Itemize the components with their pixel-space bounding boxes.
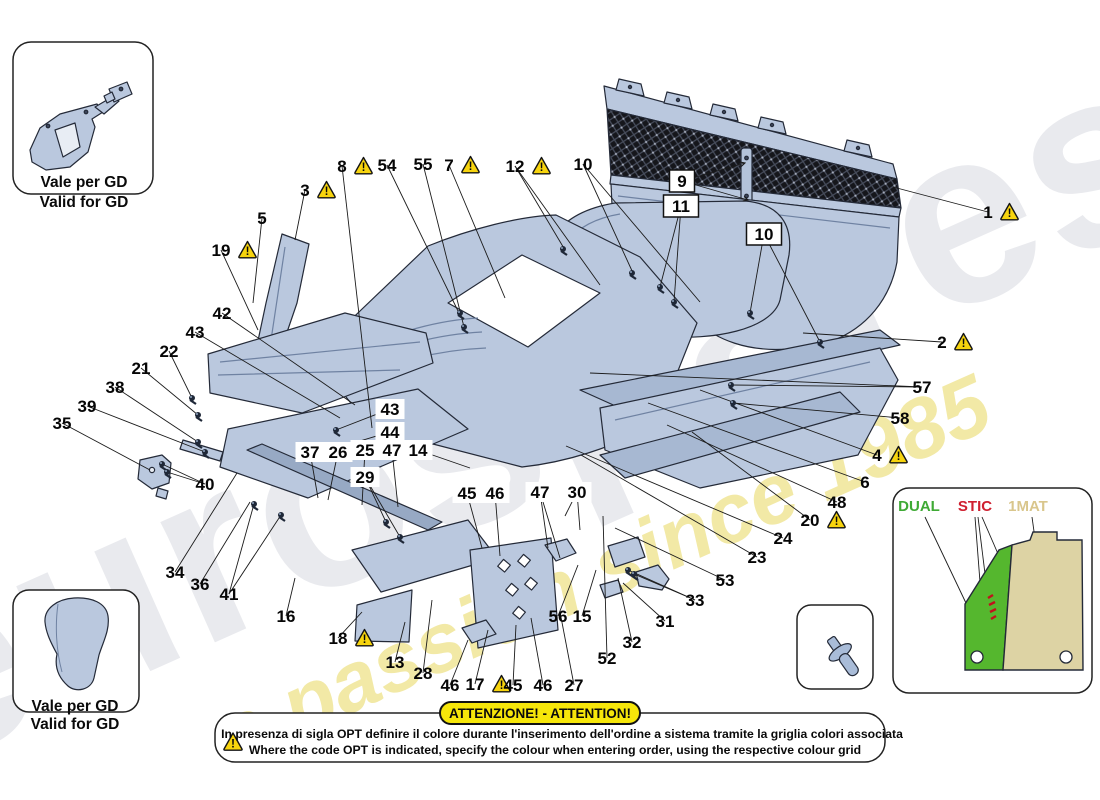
callout-31: 31 — [656, 612, 675, 631]
callout-number: 42 — [213, 304, 232, 323]
callout-6: 6 — [860, 473, 869, 492]
parts-diagram-page: eurospares a passion since 1985 — [0, 0, 1100, 800]
banner-title: ATTENZIONE! - ATTENTION! — [449, 706, 631, 721]
callout-47: 47 — [378, 440, 407, 460]
legend-option-stic: STIC — [958, 498, 992, 515]
callout-29: 29 — [351, 467, 380, 487]
svg-text:!: ! — [962, 338, 966, 350]
callout-45: 45 — [504, 676, 523, 695]
callout-number: 47 — [531, 483, 550, 502]
callout-number: 36 — [191, 575, 210, 594]
callout-10: 10 — [747, 223, 782, 245]
callout-5: 5 — [257, 209, 266, 228]
callout-9: 9 — [670, 170, 695, 192]
callout-41: 41 — [220, 585, 239, 604]
inset-top-left-caption-en: Valid for GD — [40, 194, 129, 211]
callout-23: 23 — [748, 548, 767, 567]
callout-34: 34 — [166, 563, 185, 582]
callout-3: 3! — [300, 181, 335, 200]
callout-54: 54 — [378, 156, 397, 175]
callout-25: 25 — [351, 440, 380, 460]
callout-number: 4 — [872, 446, 882, 465]
svg-text:!: ! — [469, 161, 473, 173]
callout-24: 24 — [774, 529, 793, 548]
inset-top-left: Vale per GD Valid for GD — [13, 42, 153, 211]
callout-number: 23 — [748, 548, 767, 567]
callout-number: 24 — [774, 529, 793, 548]
callout-number: 38 — [106, 378, 125, 397]
callout-number: 56 — [549, 607, 568, 626]
callout-number: 47 — [383, 441, 402, 460]
callout-46: 46 — [481, 483, 510, 503]
callout-number: 14 — [409, 441, 428, 460]
callout-45: 45 — [453, 483, 482, 503]
callout-number: 1 — [983, 203, 992, 222]
callout-43: 43 — [376, 399, 405, 419]
callout-number: 13 — [386, 653, 405, 672]
callout-number: 3 — [300, 181, 309, 200]
callout-number: 37 — [301, 443, 320, 462]
callout-15: 15 — [573, 607, 592, 626]
callout-37: 37 — [296, 442, 325, 462]
callout-number: 46 — [534, 676, 553, 695]
callout-number: 54 — [378, 156, 397, 175]
callout-58: 58 — [891, 409, 910, 428]
inset-bottom-left-caption-en: Valid for GD — [31, 716, 120, 733]
inset-bottom-left: Vale per GD Valid for GD — [13, 590, 139, 733]
callout-16: 16 — [277, 607, 296, 626]
callout-32: 32 — [623, 633, 642, 652]
warning-triangle-icon: ! — [318, 182, 335, 199]
callout-number: 10 — [574, 155, 593, 174]
callout-number: 17 — [466, 675, 485, 694]
svg-text:!: ! — [246, 246, 250, 258]
callout-12: 12! — [506, 157, 551, 176]
callout-11: 11 — [664, 195, 699, 217]
callout-26: 26 — [324, 442, 353, 462]
floor-mat-body — [1003, 532, 1083, 670]
svg-text:!: ! — [325, 186, 329, 198]
callout-38: 38 — [106, 378, 125, 397]
callout-number: 33 — [686, 591, 705, 610]
callout-number: 27 — [565, 676, 584, 695]
callout-number: 55 — [414, 155, 433, 174]
callout-52: 52 — [598, 649, 617, 668]
diagram-canvas: eurospares a passion since 1985 — [0, 0, 1100, 800]
callout-number: 58 — [891, 409, 910, 428]
callout-55: 55 — [414, 155, 433, 174]
callout-number: 28 — [414, 664, 433, 683]
callout-number: 20 — [801, 511, 820, 530]
callout-number: 15 — [573, 607, 592, 626]
svg-text:!: ! — [897, 451, 901, 463]
callout-46: 46 — [534, 676, 553, 695]
callout-48: 48 — [828, 493, 847, 512]
callout-number: 45 — [458, 484, 477, 503]
callout-number: 43 — [381, 400, 400, 419]
callout-46: 46 — [441, 676, 460, 695]
callout-13: 13 — [386, 653, 405, 672]
callout-42: 42 — [213, 304, 232, 323]
callout-number: 6 — [860, 473, 869, 492]
warning-triangle-icon: ! — [239, 242, 256, 259]
callout-number: 46 — [441, 676, 460, 695]
svg-text:!: ! — [835, 516, 839, 528]
callout-number: 9 — [677, 172, 686, 191]
callout-number: 48 — [828, 493, 847, 512]
warning-triangle-icon: ! — [355, 158, 372, 175]
callout-8: 8! — [337, 157, 372, 176]
callout-number: 10 — [755, 225, 774, 244]
callout-14: 14 — [404, 440, 433, 460]
callout-number: 46 — [486, 484, 505, 503]
callout-number: 25 — [356, 441, 375, 460]
svg-text:!: ! — [540, 162, 544, 174]
callout-number: 52 — [598, 649, 617, 668]
callout-47: 47 — [526, 482, 555, 502]
legend-option-dual: DUAL — [898, 498, 940, 515]
callout-21: 21 — [132, 359, 151, 378]
callout-number: 53 — [716, 571, 735, 590]
callout-56: 56 — [549, 607, 568, 626]
callout-number: 8 — [337, 157, 346, 176]
callout-39: 39 — [78, 397, 97, 416]
callout-number: 40 — [196, 475, 215, 494]
callout-40: 40 — [196, 475, 215, 494]
callout-27: 27 — [565, 676, 584, 695]
callout-10: 10 — [574, 155, 593, 174]
callout-number: 26 — [329, 443, 348, 462]
warning-triangle-icon: ! — [533, 158, 550, 175]
callout-number: 39 — [78, 397, 97, 416]
callout-number: 32 — [623, 633, 642, 652]
callout-number: 35 — [53, 414, 72, 433]
banner-line-it: In presenza di sigla OPT definire il col… — [221, 727, 903, 741]
callout-19: 19! — [212, 241, 257, 260]
callout-number: 21 — [132, 359, 151, 378]
callout-44: 44 — [376, 422, 405, 442]
callout-number: 16 — [277, 607, 296, 626]
callout-number: 34 — [166, 563, 185, 582]
callout-number: 7 — [444, 156, 453, 175]
legend-option-1mat: 1MAT — [1008, 498, 1048, 515]
banner-line-en: Where the code OPT is indicated, specify… — [249, 743, 861, 757]
callout-number: 57 — [913, 378, 932, 397]
callout-number: 19 — [212, 241, 231, 260]
warning-triangle-icon: ! — [462, 157, 479, 174]
callout-36: 36 — [191, 575, 210, 594]
svg-text:!: ! — [363, 634, 367, 646]
callout-57: 57 — [913, 378, 932, 397]
svg-text:!: ! — [1008, 208, 1012, 220]
callout-number: 44 — [381, 423, 400, 442]
callout-number: 30 — [568, 483, 587, 502]
svg-text:!: ! — [362, 162, 366, 174]
callout-30: 30 — [563, 482, 592, 502]
inset-bottom-left-caption-it: Vale per GD — [31, 698, 118, 715]
callout-35: 35 — [53, 414, 72, 433]
callout-number: 12 — [506, 157, 525, 176]
callout-7: 7! — [444, 156, 479, 175]
callout-number: 2 — [937, 333, 946, 352]
callout-33: 33 — [686, 591, 705, 610]
callout-number: 43 — [186, 323, 205, 342]
inset-fastener-59 — [797, 605, 873, 689]
callout-28: 28 — [414, 664, 433, 683]
leader-line — [253, 218, 262, 303]
callout-53: 53 — [716, 571, 735, 590]
callout-number: 11 — [672, 197, 690, 216]
inset-top-left-caption-it: Vale per GD — [40, 174, 127, 191]
callout-number: 29 — [356, 468, 375, 487]
mat-colour-legend: DUAL STIC 1MAT — [893, 488, 1092, 693]
callout-43: 43 — [186, 323, 205, 342]
fastener-icon — [189, 395, 196, 404]
callout-number: 5 — [257, 209, 266, 228]
callout-22: 22 — [160, 342, 179, 361]
callout-number: 18 — [329, 629, 348, 648]
callout-number: 45 — [504, 676, 523, 695]
callout-number: 41 — [220, 585, 239, 604]
callout-number: 22 — [160, 342, 179, 361]
callout-number: 31 — [656, 612, 675, 631]
